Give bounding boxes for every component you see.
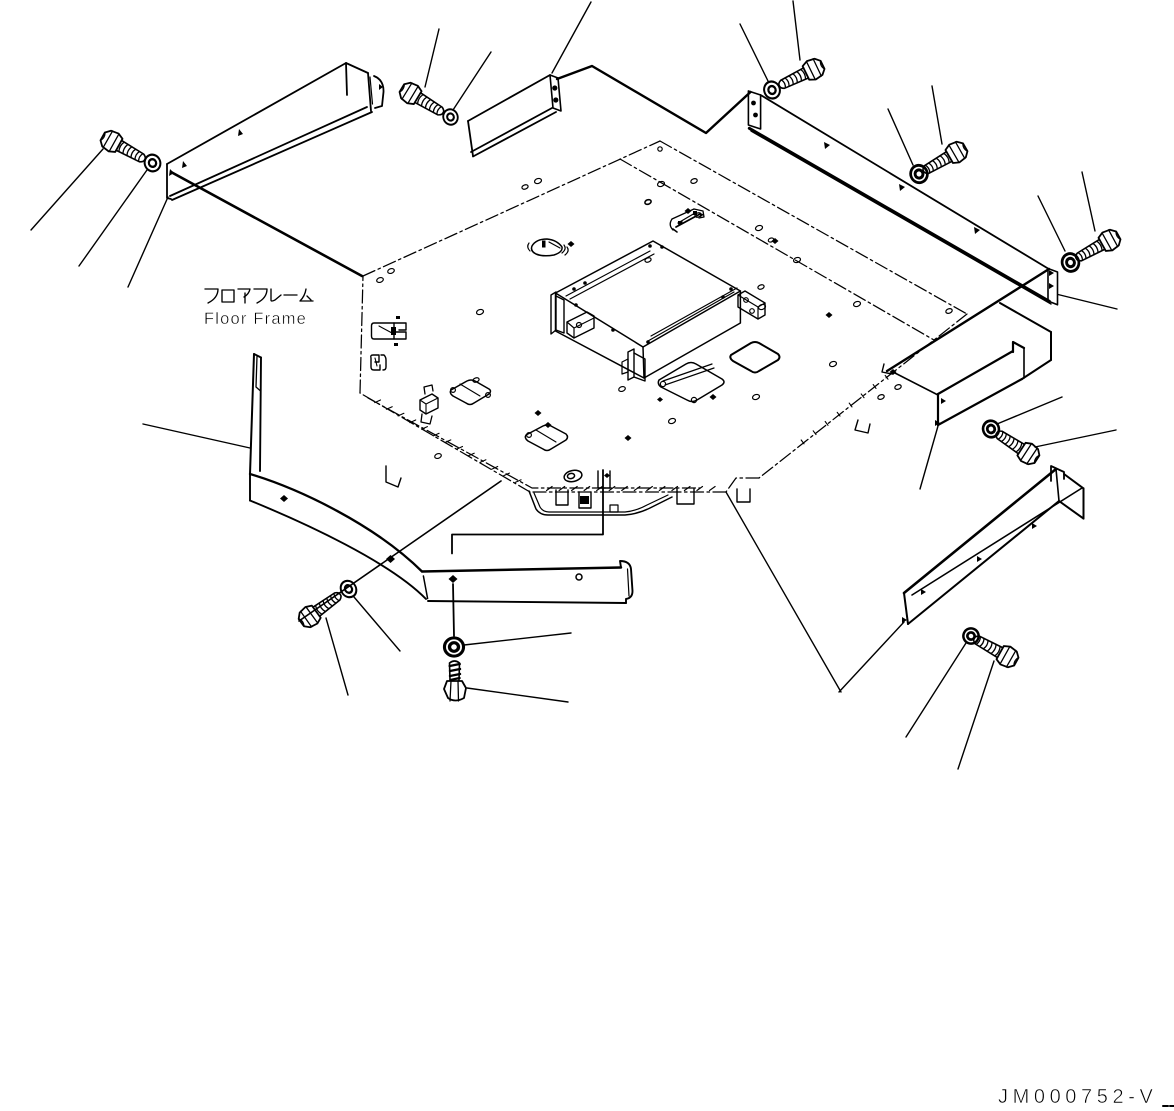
svg-text:JM000752-V: JM000752-V	[998, 1086, 1157, 1108]
svg-text:Floor Frame: Floor Frame	[204, 310, 307, 328]
